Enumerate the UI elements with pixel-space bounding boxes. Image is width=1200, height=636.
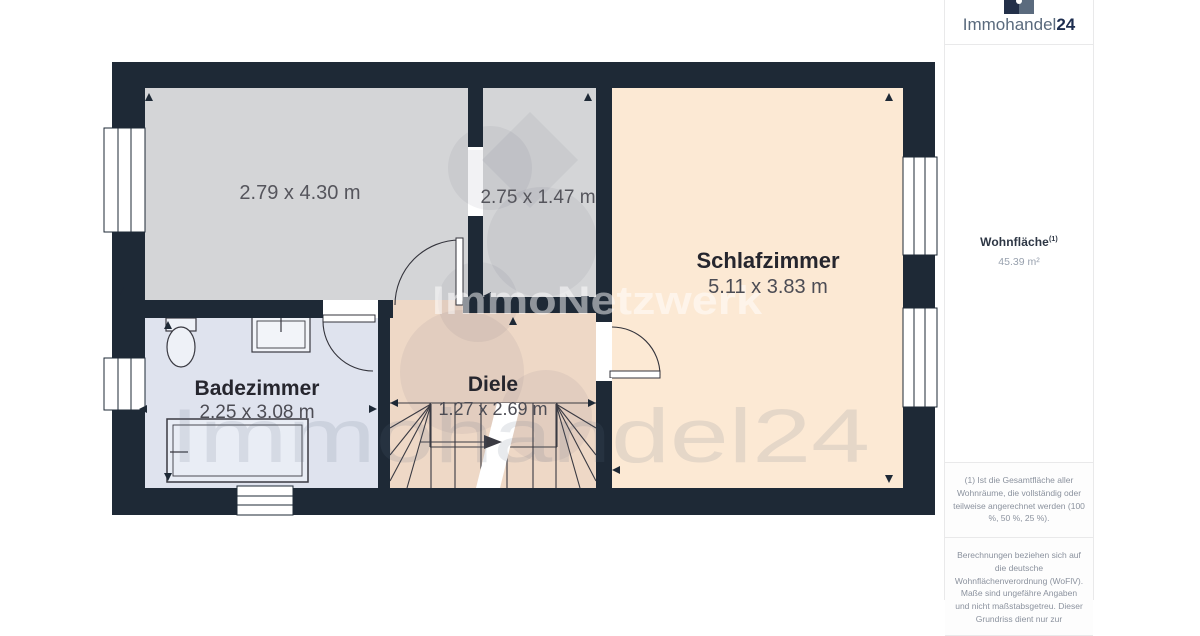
living-area-label: Wohnfläche(1) bbox=[945, 235, 1093, 249]
footnote-disclaimer: Berechnungen beziehen sich auf die deuts… bbox=[945, 538, 1093, 636]
window-right-bottom bbox=[903, 308, 937, 407]
window-right-top bbox=[903, 157, 937, 255]
schlafzimmer-dimensions: 5.11 x 3.83 m bbox=[708, 276, 828, 298]
footnote-definition: (1) Ist die Gesamtfläche aller Wohnräume… bbox=[945, 463, 1093, 538]
badezimmer-label: Badezimmer bbox=[195, 377, 320, 400]
brand-logo: Immohandel24 bbox=[945, 0, 1093, 45]
schlafzimmer-label: Schlafzimmer bbox=[696, 248, 839, 273]
window-left-bottom bbox=[104, 358, 145, 410]
window-left-top bbox=[104, 128, 145, 232]
info-sidebar: Immohandel24 Wohnfläche(1) 45.39 m² (1) … bbox=[944, 0, 1094, 600]
badezimmer-dimensions: 2.25 x 3.08 m bbox=[199, 402, 314, 423]
brand-name-main: Immohandel bbox=[963, 15, 1057, 34]
house-icon bbox=[1004, 0, 1034, 14]
window-bottom bbox=[237, 486, 293, 515]
brand-name-suffix: 24 bbox=[1056, 15, 1075, 34]
toilet-bowl bbox=[167, 327, 195, 367]
living-area-value: 45.39 m² bbox=[945, 256, 1093, 268]
room-top-middle-dimensions: 2.75 x 1.47 m bbox=[480, 187, 595, 208]
door-leaf-bath bbox=[323, 315, 375, 322]
door-leaf-schlafzimmer bbox=[610, 371, 660, 378]
diele-label: Diele bbox=[468, 373, 518, 396]
living-area-footnote-marker: (1) bbox=[1049, 236, 1058, 243]
brand-name: Immohandel24 bbox=[963, 16, 1075, 34]
bath-door-opening bbox=[323, 300, 378, 317]
living-area-section: Wohnfläche(1) 45.39 m² bbox=[945, 45, 1093, 463]
diele-dimensions: 1.27 x 2.69 m bbox=[438, 399, 547, 419]
room-top-left-dimensions: 2.79 x 4.30 m bbox=[239, 182, 360, 204]
